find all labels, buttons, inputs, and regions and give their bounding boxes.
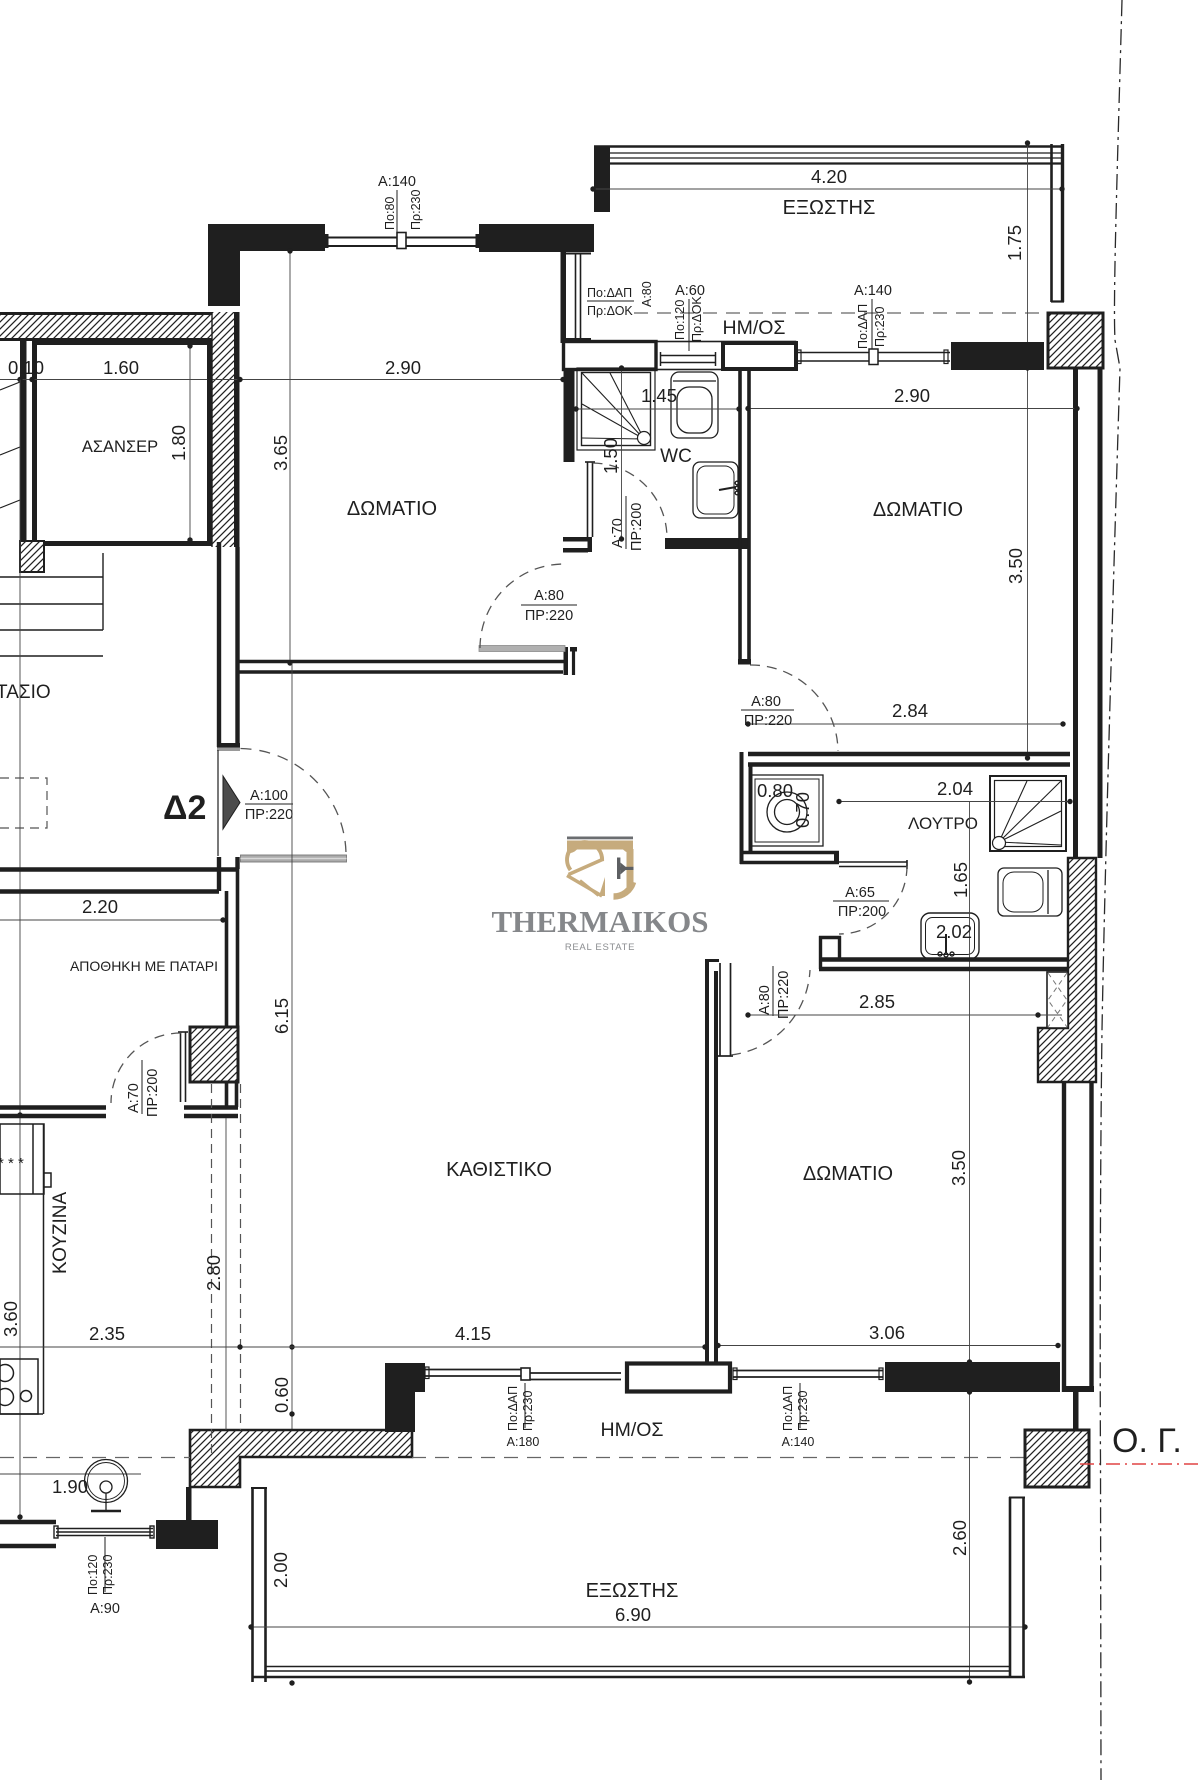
svg-text:A:140: A:140 [378,174,416,190]
svg-text:REAL ESTATE: REAL ESTATE [565,942,635,953]
svg-text:ΗΜ/ΟΣ: ΗΜ/ΟΣ [723,317,786,339]
svg-text:Πρ:230: Πρ:230 [796,1390,810,1431]
svg-text:A:70: A:70 [610,518,626,548]
svg-text:ΕΞΩΣΤΗΣ: ΕΞΩΣΤΗΣ [783,197,876,219]
svg-text:2.02: 2.02 [936,921,972,942]
svg-text:Πρ:ΔΟΚ: Πρ:ΔΟΚ [690,296,704,342]
svg-text:ΚΟΥΖΙΝΑ: ΚΟΥΖΙΝΑ [50,1191,71,1274]
svg-text:Πρ:ΔΟΚ: Πρ:ΔΟΚ [587,304,633,318]
svg-text:Πο:ΔΑΠ: Πο:ΔΑΠ [587,286,632,300]
svg-text:3.65: 3.65 [270,435,291,471]
svg-text:2.80: 2.80 [203,1255,224,1291]
svg-text:3.50: 3.50 [948,1150,969,1186]
svg-text:Πο:80: Πο:80 [383,197,397,230]
svg-text:ΑΣΑΝΣΕΡ: ΑΣΑΝΣΕΡ [82,438,158,456]
svg-text:Πο:120: Πο:120 [86,1555,100,1595]
svg-text:ΠΡ:220: ΠΡ:220 [776,971,792,1019]
svg-text:ΗΜ/ΟΣ: ΗΜ/ΟΣ [601,1419,664,1441]
svg-text:6.90: 6.90 [615,1604,651,1625]
svg-text:3.60: 3.60 [0,1301,21,1337]
svg-text:Πο:ΔΑΠ: Πο:ΔΑΠ [856,304,870,349]
svg-text:2.35: 2.35 [89,1323,125,1344]
svg-text:2.04: 2.04 [937,778,973,799]
svg-text:2.90: 2.90 [894,385,930,406]
svg-text:A:140: A:140 [782,1435,815,1449]
svg-text:1.45: 1.45 [641,385,677,406]
svg-text:THERMAIKOS: THERMAIKOS [491,904,708,939]
svg-text:ΠΡ:220: ΠΡ:220 [525,608,573,624]
svg-text:ΠΡ:220: ΠΡ:220 [744,713,792,729]
svg-text:A:80: A:80 [751,694,781,710]
svg-text:0.70: 0.70 [792,792,813,828]
svg-text:ΤΑΣΙΟ: ΤΑΣΙΟ [0,682,51,703]
svg-text:Πο:ΔΑΠ: Πο:ΔΑΠ [506,1386,520,1431]
svg-text:1.75: 1.75 [1004,225,1025,261]
svg-text:ΠΡ:220: ΠΡ:220 [245,807,293,823]
svg-text:ΔΩΜΑΤΙΟ: ΔΩΜΑΤΙΟ [873,499,963,521]
svg-text:ΠΡ:200: ΠΡ:200 [838,904,886,920]
svg-text:6.15: 6.15 [271,998,292,1034]
svg-text:Ο. Γ.: Ο. Γ. [1112,1422,1182,1460]
svg-text:A:70: A:70 [126,1083,142,1113]
svg-text:3.50: 3.50 [1005,548,1026,584]
svg-text:A:90: A:90 [90,1601,120,1617]
svg-text:1.50: 1.50 [600,438,621,474]
svg-text:A:180: A:180 [507,1435,540,1449]
svg-text:4.15: 4.15 [455,1323,491,1344]
svg-text:1.60: 1.60 [103,357,139,378]
svg-text:Δ2: Δ2 [163,789,206,827]
svg-text:4.20: 4.20 [811,166,847,187]
svg-text:* * *: * * * [0,1155,24,1172]
svg-text:0.60: 0.60 [271,1377,292,1413]
svg-text:A:80: A:80 [640,281,654,307]
svg-text:Πρ:230: Πρ:230 [521,1390,535,1431]
svg-text:Πο:120: Πο:120 [673,300,687,340]
svg-text:2.84: 2.84 [892,700,928,721]
svg-text:ΚΑΘΙΣΤΙΚΟ: ΚΑΘΙΣΤΙΚΟ [446,1159,552,1181]
svg-text:1.80: 1.80 [168,425,189,461]
svg-text:Πρ:230: Πρ:230 [101,1554,115,1595]
svg-text:2.60: 2.60 [949,1520,970,1556]
svg-text:2.90: 2.90 [385,357,421,378]
svg-text:2.85: 2.85 [859,991,895,1012]
svg-text:Πρ:230: Πρ:230 [409,189,423,230]
svg-text:2.20: 2.20 [82,896,118,917]
svg-text:2.00: 2.00 [270,1552,291,1588]
svg-text:A:140: A:140 [854,283,892,299]
svg-text:A:65: A:65 [845,885,875,901]
svg-text:0.10: 0.10 [8,357,44,378]
svg-text:1.65: 1.65 [950,862,971,898]
svg-text:Πρ:230: Πρ:230 [873,306,887,347]
svg-text:A:100: A:100 [250,788,288,804]
svg-text:ΔΩΜΑΤΙΟ: ΔΩΜΑΤΙΟ [803,1163,893,1185]
svg-text:ΛΟΥΤΡΟ: ΛΟΥΤΡΟ [908,814,978,833]
svg-text:ΔΩΜΑΤΙΟ: ΔΩΜΑΤΙΟ [347,498,437,520]
svg-text:0.80: 0.80 [757,780,793,801]
svg-text:Πο:ΔΑΠ: Πο:ΔΑΠ [781,1386,795,1431]
svg-text:ΠΡ:200: ΠΡ:200 [145,1069,161,1117]
svg-text:1.90: 1.90 [52,1476,88,1497]
svg-text:ΕΞΩΣΤΗΣ: ΕΞΩΣΤΗΣ [586,1580,679,1602]
svg-text:A:80: A:80 [534,588,564,604]
svg-text:ΑΠΟΘΗΚΗ ΜΕ ΠΑΤΑΡΙ: ΑΠΟΘΗΚΗ ΜΕ ΠΑΤΑΡΙ [70,958,218,974]
svg-text:WC: WC [660,446,692,467]
svg-text:3.06: 3.06 [869,1322,905,1343]
svg-text:A:80: A:80 [757,985,773,1015]
svg-text:ΠΡ:200: ΠΡ:200 [629,503,645,551]
